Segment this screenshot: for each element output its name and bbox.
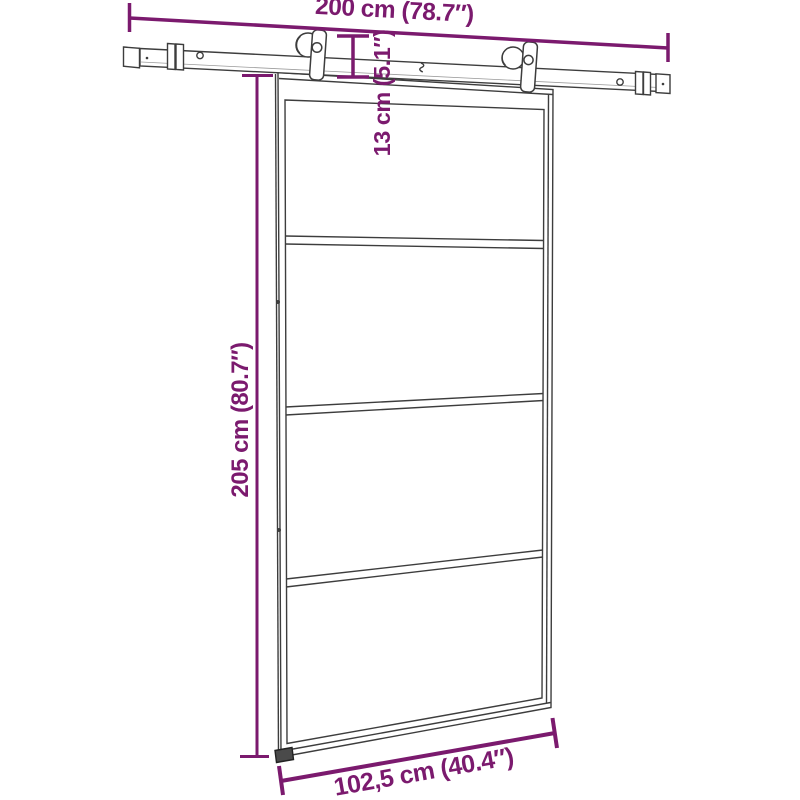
- door-panel: [275, 73, 553, 763]
- dim-gap-label: 13 cm (5.1″): [369, 30, 395, 157]
- rail-collar-left-b: [176, 44, 184, 70]
- rail-collar-right-b: [644, 72, 651, 95]
- dim-rail-length-label: 200 cm (78.7″): [314, 0, 474, 28]
- hanger-bolt-right: [524, 55, 533, 64]
- frame-screw-dot-upper: [276, 300, 280, 304]
- dimension-diagram: 200 cm (78.7″) 13 cm (5.1″) 205 cm (80.7…: [0, 0, 800, 800]
- rail-dot-right: [662, 83, 665, 86]
- dim-door-width-label: 102,5 cm (40.4″): [332, 743, 516, 800]
- diagram-page: 200 cm (78.7″) 13 cm (5.1″) 205 cm (80.7…: [0, 0, 800, 800]
- floor-guide: [275, 748, 294, 763]
- rail-dot-left: [146, 57, 149, 60]
- hanger-strap-left: [309, 30, 326, 81]
- rail-end-cap-left: [124, 47, 140, 68]
- rail-collar-right-a: [636, 72, 644, 95]
- rail-collar-left-a: [168, 44, 176, 70]
- door-outer-frame: [278, 73, 553, 758]
- frame-screw-dot-lower: [277, 528, 281, 532]
- hanger-bolt-left: [312, 43, 322, 53]
- dim-door-height-label: 205 cm (80.7″): [227, 342, 254, 497]
- hanger-strap-right: [520, 42, 537, 93]
